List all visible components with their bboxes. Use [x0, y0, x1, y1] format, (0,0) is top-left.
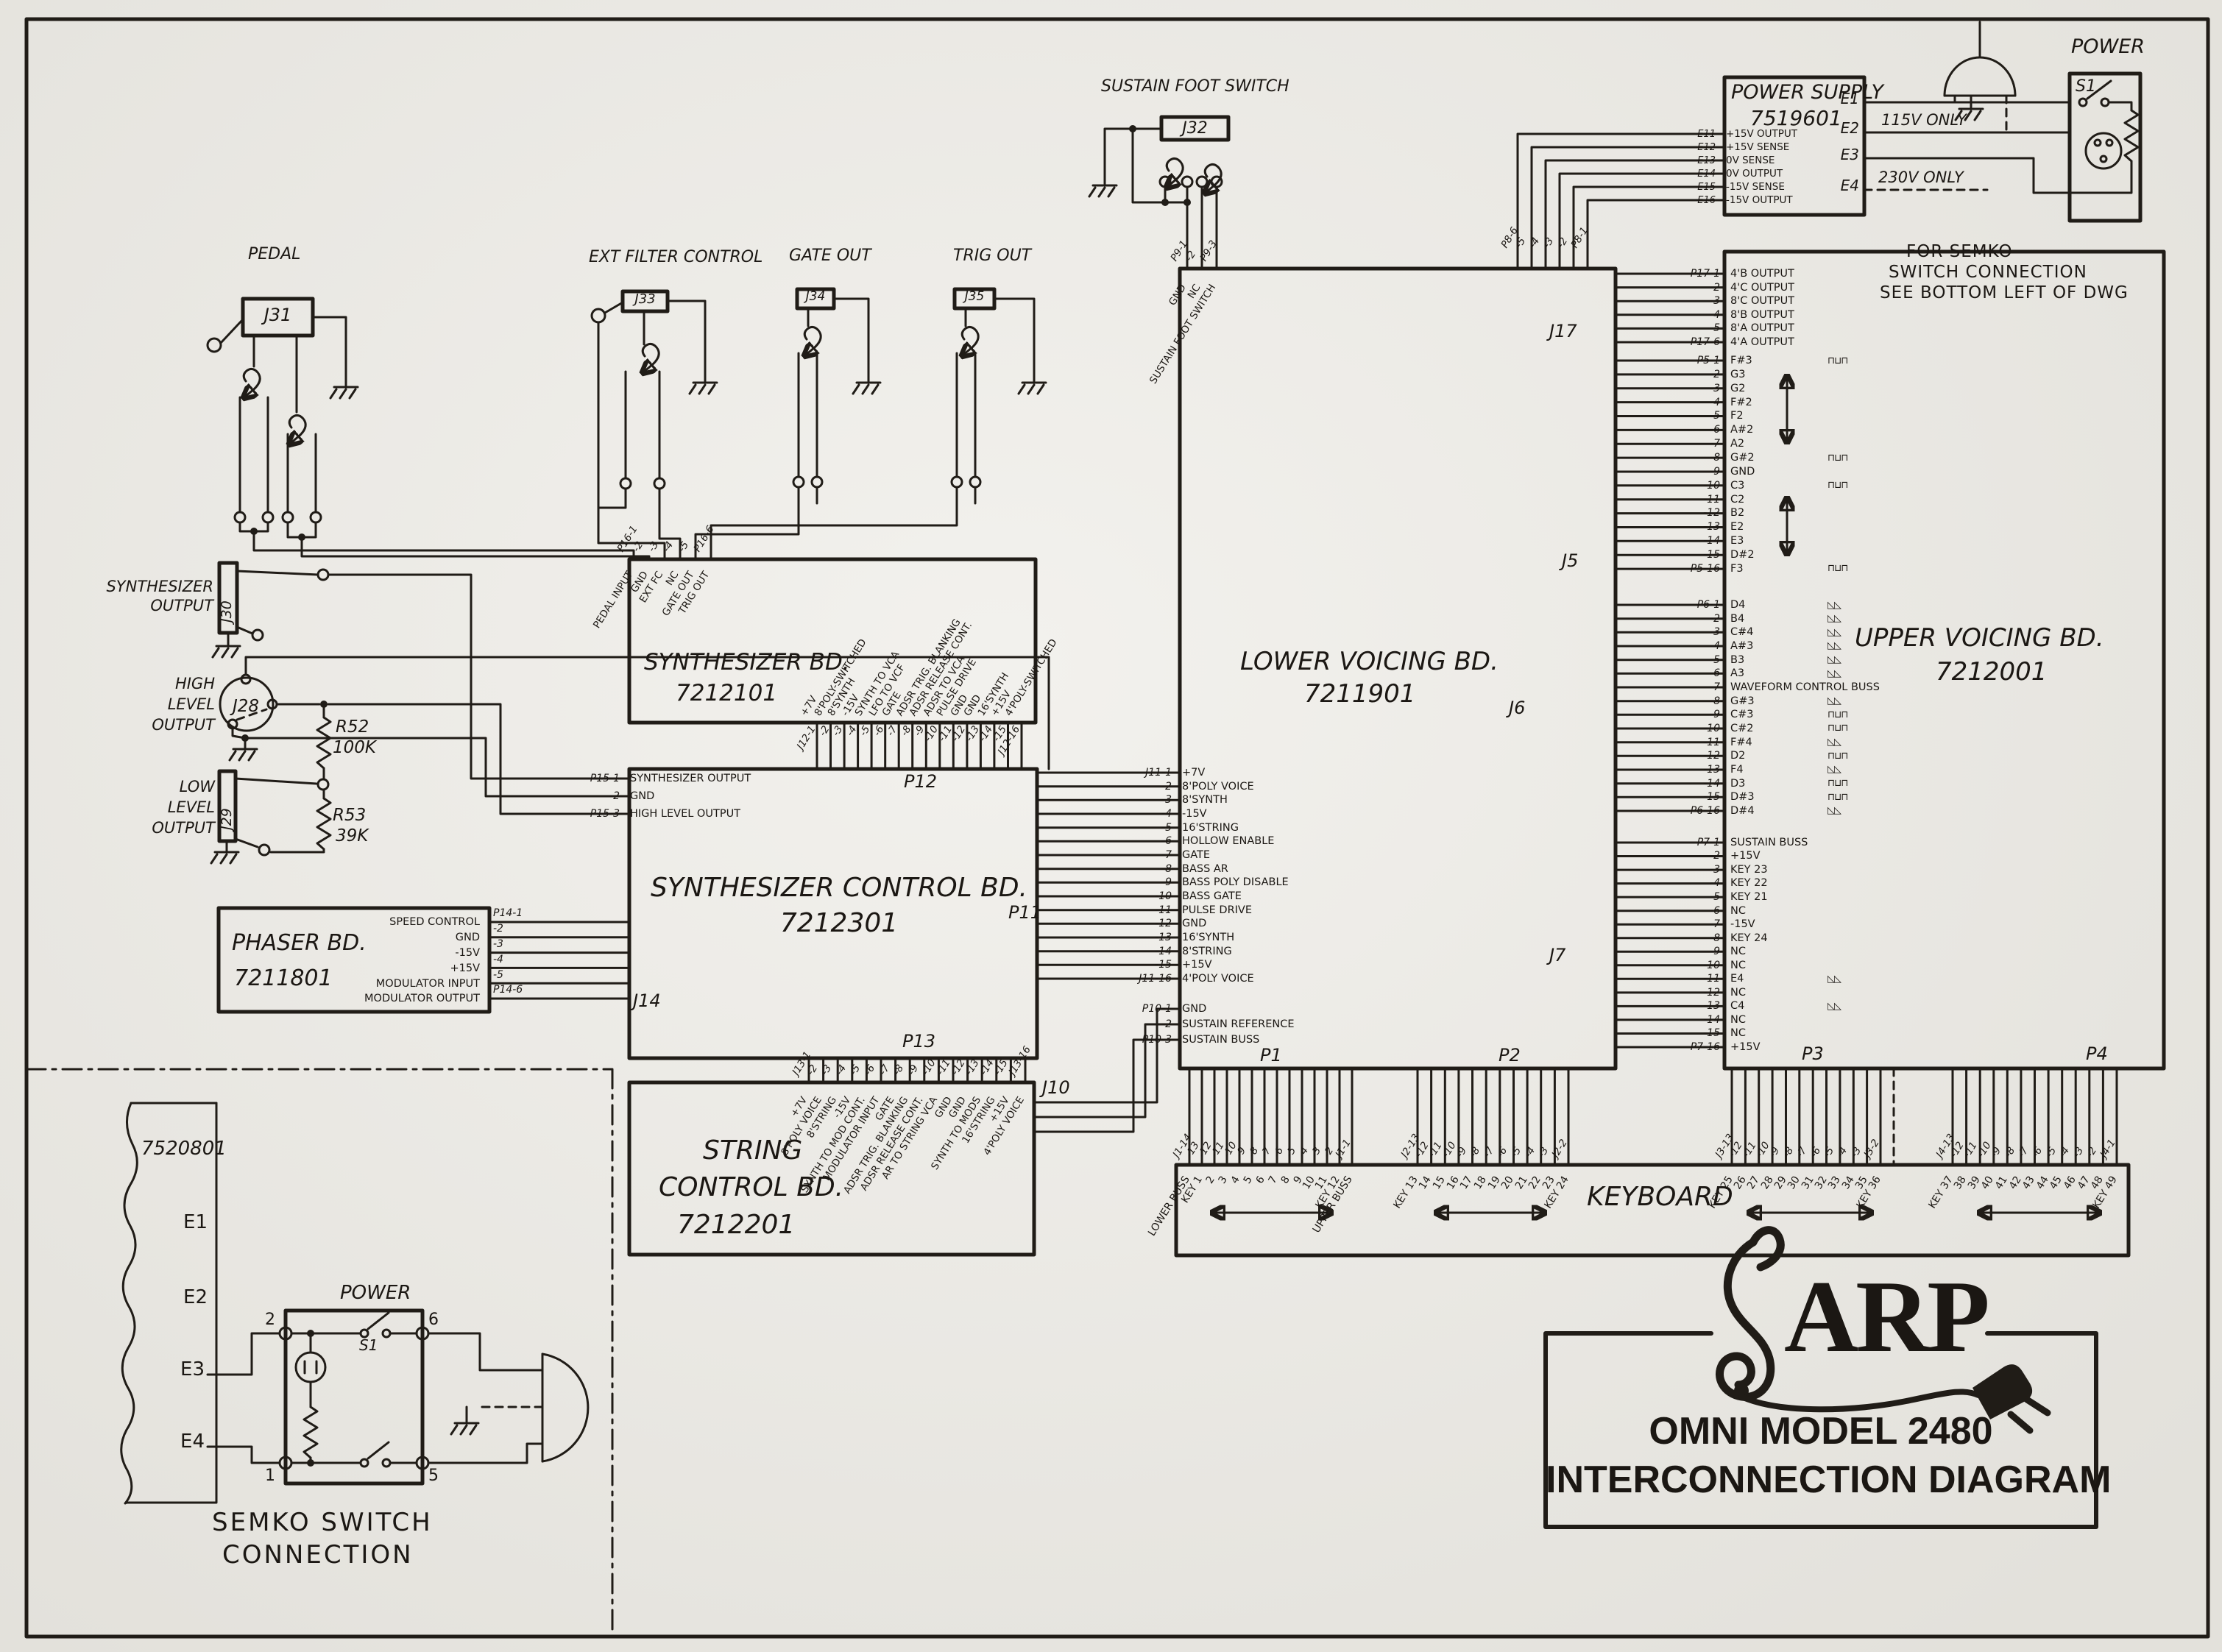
pin-row: -9 C#3 ⊓⊔⊓ [1619, 708, 1847, 722]
pin-name-cell: ADSR TRIG. BLANKING [904, 717, 918, 718]
note-115v: 115V ONLY [1881, 112, 1967, 128]
ps-term-e4: E4 [1816, 178, 1859, 194]
pin-number-cell: -10 [1231, 1159, 1243, 1160]
pin-name: SUSTAIN REFERENCE [1182, 1018, 1344, 1030]
jack-j31-ref: J31 [243, 306, 313, 325]
pin-row: MODULATOR INPUT [280, 976, 480, 991]
low-level-label-2: LEVEL [132, 799, 215, 815]
pin-number: P15-3 [508, 808, 630, 820]
j3-pin-numbers: J3-13-12-11-10-9-8-7-6-5-4-3J3-2 [1723, 1159, 1885, 1160]
pin-waveform: ⊓⊔⊓ [1825, 355, 1847, 366]
pin-number: -3 [1619, 295, 1730, 307]
pin-name-cell: NC [1189, 288, 1203, 288]
pin-number-cell: -8 [1791, 1159, 1804, 1160]
pin-number: J11-16 [1060, 973, 1182, 985]
pin-waveform: ⊓⊔⊓ [1825, 723, 1847, 734]
pin-number-cell: -7 [1804, 1159, 1817, 1160]
ps-port-terminal: E13 [1651, 155, 1726, 166]
ps-port-row: E15 -15V SENSE [1651, 180, 1822, 194]
pin-number-cell: J12-1 [804, 729, 818, 730]
pin-name: B4 [1730, 613, 1825, 625]
pin-number-cell: -8 [900, 729, 914, 730]
pin-number: -10 [1060, 890, 1182, 902]
j2-pin-numbers: J2-13-12-11-10-9-8-7-6-5-4-3J2-2 [1409, 1159, 1574, 1160]
pin-name: KEY 24 [1730, 932, 1825, 944]
pin-name: 4'A OUTPUT [1730, 336, 1825, 348]
pin-name: +15V [1182, 959, 1344, 971]
pin-row: -12 GND [1060, 917, 1344, 931]
upper-board-number: 7212001 [1936, 659, 2047, 686]
pin-row: -12 NC [1619, 985, 1841, 999]
pin-number: -14 [1060, 946, 1182, 957]
pin-number: -2 [1619, 369, 1730, 380]
pin-number: P6-1 [1619, 599, 1730, 611]
pin-row: -8 KEY 24 [1619, 931, 1841, 945]
pin-number-cell: -6 [1818, 1159, 1831, 1160]
pin-name-cell: ADSR TO VCA [931, 717, 945, 718]
pin-number-cell: -5 [1831, 1159, 1844, 1160]
p16-pin-numbers: P16-1-2-3-4-5P16-6 [625, 553, 717, 554]
pin-name-cell: 4'POLY-SWITCHED [1013, 717, 1027, 718]
connector-j10-label: J10 [1042, 1079, 1070, 1097]
pin-row: -5 [493, 967, 523, 982]
pin-name: SUSTAIN BUSS [1730, 837, 1825, 848]
pin-name: C#4 [1730, 626, 1825, 638]
pin-number-cell: P16-1 [625, 553, 640, 554]
low-level-label-3: OUTPUT [132, 820, 215, 836]
semko-note-2: SWITCH CONNECTION [1889, 263, 2087, 281]
ps-port-terminal: E14 [1651, 169, 1726, 180]
key-name-cell: 38 [1956, 1180, 1970, 1180]
pin-number-cell: J13-1 [800, 1077, 815, 1077]
pin-number-cell: -4 [1537, 249, 1551, 250]
pin-number: -4 [493, 954, 503, 965]
pin-name-cell: PULSE DRIVE [944, 717, 958, 718]
j4-key-names: KEY 373839404142434445464748KEY 49 [1942, 1180, 2120, 1180]
pin-number-cell: -11 [941, 729, 955, 730]
pin-waveform: ◺◺ [1825, 974, 1841, 985]
ps-port-name: -15V OUTPUT [1726, 194, 1822, 206]
pin-number-cell: -6 [1504, 1159, 1518, 1160]
pin-row: -12 D2 ⊓⊔⊓ [1619, 749, 1847, 763]
pin-row: -13 C4 ◺◺ [1619, 999, 1841, 1013]
pin-number-cell: -2 [1565, 249, 1579, 250]
pin-number: -12 [1619, 987, 1730, 999]
pin-number-cell: -6 [2039, 1159, 2053, 1160]
pin-waveform: ◺◺ [1825, 764, 1841, 775]
pin-number-cell: -10 [1985, 1159, 1999, 1160]
pin-number-cell: -11 [1971, 1159, 1985, 1160]
pin-waveform: ◺◺ [1825, 1001, 1841, 1012]
pin-name-cell: +7V [808, 717, 822, 718]
pin-number-cell: -14 [982, 729, 996, 730]
pin-name: 8'POLY VOICE [1182, 781, 1344, 793]
synth-output-label-1: SYNTHESIZER [103, 578, 213, 595]
pin-number: P6-16 [1619, 805, 1730, 817]
pin-number-cell: J2-2 [1560, 1159, 1574, 1160]
pin-name: 8'SYNTH [1182, 794, 1344, 806]
lower-board-name: LOWER VOICING BD. [1240, 649, 1499, 676]
power-switch-ref: S1 [2076, 78, 2096, 95]
pin-number-cell: -10 [927, 729, 941, 730]
pin-row: -5 16'STRING [1060, 820, 1344, 834]
pin-number-cell: -9 [1464, 1159, 1478, 1160]
pin-number: -13 [1619, 764, 1730, 776]
semko-board-number: 7520801 [141, 1139, 227, 1159]
pin-number-cell: -11 [1218, 1159, 1231, 1160]
pin-name-cell: -15V [849, 717, 863, 718]
pin-number-cell: -3 [2081, 1159, 2095, 1160]
pin-number: P15-1 [508, 773, 630, 784]
pin-row: -11 E4 ◺◺ [1619, 972, 1841, 986]
power-supply-name: POWER SUPPLY [1731, 82, 1883, 103]
pin-name: NC [1730, 1014, 1825, 1026]
pin-number: -11 [1619, 494, 1730, 506]
pin-number-cell: -6 [872, 1077, 887, 1077]
ps-term-e3: E3 [1816, 147, 1859, 163]
pin-row: -15 D#2 [1619, 548, 1847, 562]
p14-pin-numbers: P14-1 -2 -3 -4 -5 P14-6 [493, 906, 523, 998]
pin-number-cell: -6 [873, 729, 887, 730]
pin-name-cell: 16'STRING [983, 1100, 998, 1101]
key-name-cell: 30 [1789, 1180, 1802, 1180]
pin-number: -6 [1619, 667, 1730, 679]
pin-number: -11 [1619, 737, 1730, 748]
pin-number: -13 [1619, 1000, 1730, 1012]
pin-number: -12 [1619, 507, 1730, 519]
trig-out-jack-symbol [711, 299, 1046, 559]
pin-name: C#2 [1730, 723, 1825, 734]
pin-number-cell: -12 [955, 729, 969, 730]
pin-row: MODULATOR OUTPUT [280, 991, 480, 1007]
schematic-sheet: PEDAL J31 EXT FILTER CONTROL J33 GATE OU… [0, 0, 2222, 1652]
pin-row: -3 8'SYNTH [1060, 793, 1344, 807]
pin-number-cell: -14 [988, 1077, 1002, 1077]
p10-pins: P10-1 GND -2 SUSTAIN REFERENCE P10-3 SUS… [1060, 1002, 1344, 1048]
pin-number: P10-3 [1060, 1034, 1182, 1046]
key-name-cell: 21 [1516, 1180, 1530, 1180]
pin-row: -2 B4 ◺◺ [1619, 611, 1847, 625]
pin-row: -9 BASS POLY DISABLE [1060, 876, 1344, 890]
pin-number-cell: -3 [1551, 249, 1565, 250]
gate-out-jack-symbol [696, 299, 880, 559]
pin-number: -2 [1619, 850, 1730, 862]
pin-number: -12 [1619, 750, 1730, 762]
pin-name: BASS AR [1182, 863, 1344, 875]
pin-number-cell: -10 [1450, 1159, 1464, 1160]
key-name-cell: 28 [1762, 1180, 1775, 1180]
pin-number-cell: -15 [995, 729, 1009, 730]
connector-p2-label: P2 [1499, 1046, 1521, 1065]
pin-name: F#2 [1730, 397, 1825, 408]
semko-switch-ref: S1 [359, 1338, 378, 1353]
key-name-cell: 33 [1830, 1180, 1843, 1180]
pin-name: GND [1182, 1003, 1344, 1015]
pin-number: J11-1 [1060, 767, 1182, 779]
pin-name-cell: TRIG OUT [696, 575, 712, 575]
pin-number-cell: -6 [1281, 1159, 1293, 1160]
pin-number: -5 [493, 969, 503, 981]
pin-name: F#3 [1730, 355, 1825, 366]
synth-board-name: SYNTHESIZER BD. [644, 650, 850, 675]
pin-number: P7-16 [1619, 1041, 1730, 1053]
power-supply-ports: E11 +15V OUTPUT E12 +15V SENSE E13 0V SE… [1651, 127, 1822, 207]
pin-number-cell: -7 [886, 729, 900, 730]
pin-name: KEY 21 [1730, 891, 1825, 903]
pin-row: -13 E2 [1619, 520, 1847, 534]
pin-number-cell: -9 [913, 729, 927, 730]
pin-number-cell: -13 [968, 729, 982, 730]
pin-number: -5 [1619, 654, 1730, 666]
pin-number-cell: P9-3 [1208, 263, 1223, 263]
pin-name-cell: SUSTAIN FOOT SWITCH [1203, 288, 1218, 288]
key-name-cell: 39 [1969, 1180, 1983, 1180]
pin-row: -2 +15V [1619, 849, 1841, 863]
ps-port-terminal: E11 [1651, 129, 1726, 140]
pin-row: -7 WAVEFORM CONTROL BUSS [1619, 681, 1847, 695]
j11-pins: J11-1 +7V -2 8'POLY VOICE -3 8'SYNTH -4 … [1060, 766, 1344, 986]
pin-name-cell: 8'SYNTH [835, 717, 849, 718]
pin-name: D3 [1730, 778, 1825, 790]
pin-row: -10 NC [1619, 958, 1841, 972]
pin-name: A#3 [1730, 640, 1825, 652]
semko-power-outline [286, 1311, 422, 1483]
jack-j34-ref: J34 [797, 291, 834, 304]
pin-row: -7 -15V [1619, 918, 1841, 932]
pin-number-cell: -12 [1423, 1159, 1437, 1160]
pin-number-cell: -5 [1523, 249, 1537, 250]
key-name-cell: KEY 37 [1942, 1180, 1956, 1180]
pin-number-cell: -4 [1306, 1159, 1318, 1160]
pin-number-cell: J1-14 [1181, 1159, 1193, 1160]
pin-row: -7 GATE [1060, 848, 1344, 862]
low-level-label-1: LOW [132, 779, 215, 795]
pin-number: -9 [1619, 466, 1730, 478]
pin-row: -15 D#3 ⊓⊔⊓ [1619, 790, 1847, 804]
pin-number-cell: -11 [944, 1077, 959, 1077]
p8-pin-numbers: P8-6-5-4-3-2P8-1 [1509, 249, 1593, 250]
pin-name-cell: GND [955, 1100, 969, 1101]
pin-number: -15 [1619, 791, 1730, 803]
connector-p12-label: P12 [904, 773, 937, 791]
pin-row: SPEED CONTROL [280, 915, 480, 930]
pin-waveform: ◺◺ [1825, 695, 1841, 706]
pin-number-cell: -12 [959, 1077, 974, 1077]
pin-name: A#2 [1730, 424, 1825, 436]
pin-row: -6 A#2 [1619, 423, 1847, 437]
ps-port-row: E11 +15V OUTPUT [1651, 127, 1822, 141]
connector-j14-label: J14 [633, 992, 661, 1010]
pin-row: -9 NC [1619, 945, 1841, 959]
pin-number: -7 [1060, 849, 1182, 861]
key-name-cell: KEY 1 [1192, 1180, 1205, 1180]
pin-number: -10 [1619, 960, 1730, 971]
p15-pins: P15-1 SYNTHESIZER OUTPUT -2 GND P15-3 HI… [508, 770, 821, 823]
pin-number: -2 [508, 790, 630, 802]
pin-name: +15V [280, 963, 480, 974]
pin-row: -8 G#2 ⊓⊔⊓ [1619, 451, 1847, 465]
pin-number-cell: P16-6 [701, 553, 717, 554]
pin-name: 8'A OUTPUT [1730, 322, 1825, 334]
pin-name-cell: LFO TO VCF [877, 717, 891, 718]
pin-name-cell: 8'POLY-SWITCHED [822, 717, 836, 718]
pin-name: MODULATOR OUTPUT [280, 993, 480, 1004]
connector-p13-label: P13 [902, 1032, 935, 1051]
pin-number-cell: J3-13 [1723, 1159, 1736, 1160]
pin-row: -14 8'STRING [1060, 944, 1344, 958]
pin-number-cell: -4 [1844, 1159, 1858, 1160]
synth-output-jack-symbol [213, 570, 629, 779]
pin-name-cell: PEDAL INPUT [620, 575, 635, 575]
pin-number-cell: -11 [1436, 1159, 1450, 1160]
ps-port-name: -15V SENSE [1726, 181, 1822, 193]
key-name-cell: UPPER BUSS [1342, 1180, 1355, 1180]
semko-pin-2: 2 [265, 1311, 275, 1328]
pin-name: NC [1730, 960, 1825, 971]
pin-number: -5 [1619, 891, 1730, 903]
pin-waveform: ⊓⊔⊓ [1825, 792, 1847, 803]
pin-row: -15 NC [1619, 1027, 1841, 1041]
pin-name: 16'SYNTH [1182, 932, 1344, 943]
pin-number: -14 [1619, 778, 1730, 790]
pin-number-cell: P8-1 [1579, 249, 1593, 250]
j1-pin-numbers: J1-14-13-12-11-10-9-8-7-6-5-4-3-2J1-1 [1181, 1159, 1356, 1160]
pin-name: 16'STRING [1182, 822, 1344, 834]
pin-number: -11 [1060, 904, 1182, 916]
key-name-cell: 41 [1996, 1180, 2010, 1180]
jack-j35-ref: J35 [955, 291, 994, 304]
pin-name: NC [1730, 946, 1825, 957]
pin-name: GND [630, 790, 821, 802]
pin-name: 4'POLY VOICE [1182, 973, 1344, 985]
pin-number-cell: J3-2 [1872, 1159, 1885, 1160]
pin-number: -8 [1619, 452, 1730, 464]
pin-row: -6 HOLLOW ENABLE [1060, 834, 1344, 848]
pin-number-cell: -2 [1331, 1159, 1343, 1160]
string-board-number: 7212201 [677, 1211, 795, 1239]
pin-row: P17-1 4'B OUTPUT [1619, 267, 1825, 281]
title-line-1: OMNI MODEL 2480 [1546, 1411, 2096, 1452]
jack-j32-ref: J32 [1161, 120, 1228, 137]
pin-name-cell: GATE [890, 717, 904, 718]
pin-row: P7-16 +15V [1619, 1040, 1841, 1054]
key-name-cell: 32 [1816, 1180, 1830, 1180]
pin-number: P17-6 [1619, 336, 1730, 348]
j13-pin-names: +7V8'POLY VOICE8'STRING-15VSYNTH TO MOD … [796, 1100, 1027, 1101]
pin-name: KEY 22 [1730, 877, 1825, 889]
pin-row: -3 G2 [1619, 381, 1847, 395]
pin-number-cell: -9 [1243, 1159, 1256, 1160]
pin-name: HOLLOW ENABLE [1182, 835, 1344, 847]
pin-name: HIGH LEVEL OUTPUT [630, 808, 821, 820]
jack-j29-ref: J29 [220, 781, 235, 830]
pin-number-cell: -5 [857, 1077, 872, 1077]
pin-row: -3 [493, 937, 523, 952]
key-name-cell: 40 [1983, 1180, 1997, 1180]
pin-row: P6-1 D4 ◺◺ [1619, 598, 1847, 612]
key-name-cell: 44 [2037, 1180, 2051, 1180]
pin-number: -4 [1060, 808, 1182, 820]
pin-number-cell: -2 [1193, 263, 1208, 263]
pin-number-cell: -4 [1532, 1159, 1546, 1160]
pin-name-cell: GND [972, 717, 986, 718]
pin-number: -13 [1060, 932, 1182, 943]
pin-number-cell: P9-1 [1178, 263, 1193, 263]
pin-row: -13 F4 ◺◺ [1619, 763, 1847, 777]
resistor-r52-value: 100K [333, 739, 376, 756]
pin-row: -3 C#4 ◺◺ [1619, 625, 1847, 639]
j4-pin-numbers: J4-13-12-11-10-9-8-7-6-5-4-3-2J4-1 [1944, 1159, 2122, 1160]
semko-pin-1: 1 [265, 1467, 275, 1484]
pin-number: -15 [1619, 1027, 1730, 1039]
pin-name-cell: GND [940, 1100, 955, 1101]
pin-number: -3 [1619, 383, 1730, 394]
pin-name: F2 [1730, 410, 1825, 422]
pin-row: P10-3 SUSTAIN BUSS [1060, 1032, 1344, 1048]
pin-name-cell: SYNTH TO MOD CONT. [853, 1100, 868, 1101]
pin-waveform: ◺◺ [1825, 805, 1841, 816]
ps-port-name: 0V OUTPUT [1726, 168, 1822, 180]
pin-name-cell: GATE OUT [681, 575, 696, 575]
pin-name-cell: -15V [839, 1100, 854, 1101]
pin-row: -7 A2 [1619, 437, 1847, 451]
pin-name: GND [1730, 466, 1825, 478]
pin-name-cell: AR TO STRING VCA [925, 1100, 940, 1101]
key-name-cell: 8 [1280, 1180, 1292, 1180]
pin-number-cell: J12-16 [1009, 729, 1023, 730]
pin-row: -15V [280, 946, 480, 961]
pin-name: -15V [280, 947, 480, 959]
pin-name: SPEED CONTROL [280, 916, 480, 928]
key-name-cell: 26 [1735, 1180, 1748, 1180]
pin-name: GND [280, 932, 480, 943]
pin-name: F#4 [1730, 737, 1825, 748]
pin-number: -8 [1619, 932, 1730, 944]
pin-name: D2 [1730, 750, 1825, 762]
pin-number-cell: -4 [2067, 1159, 2081, 1160]
jack-j28-ref: J28 [233, 698, 259, 715]
pin-name: G3 [1730, 369, 1825, 380]
semko-note-1: FOR SEMKO [1906, 243, 2013, 260]
pin-row: -8 BASS AR [1060, 862, 1344, 876]
power-switch-outline [2070, 74, 2140, 221]
p16-pin-names: PEDAL INPUTGNDEXT FCNCGATE OUTTRIG OUT [620, 575, 712, 575]
pin-number: P10-1 [1060, 1003, 1182, 1015]
key-name-cell: 29 [1775, 1180, 1788, 1180]
pin-number: P7-1 [1619, 837, 1730, 848]
trig-out-label: TRIG OUT [953, 247, 1031, 264]
pin-name: 4'C OUTPUT [1730, 282, 1825, 294]
semko-e1: E1 [166, 1213, 208, 1233]
pin-row: P14-6 [493, 982, 523, 998]
pin-number-cell: -12 [1736, 1159, 1749, 1160]
pin-number: -4 [1619, 309, 1730, 321]
pin-number: -10 [1619, 480, 1730, 492]
pin-name: C4 [1730, 1000, 1825, 1012]
ps-term-e2: E2 [1816, 121, 1859, 136]
connector-p4-label: P4 [2086, 1045, 2108, 1063]
semko-pin-5: 5 [428, 1467, 439, 1484]
pin-row: -6 NC [1619, 904, 1841, 918]
semko-e4: E4 [163, 1432, 205, 1452]
pin-row: J11-1 +7V [1060, 766, 1344, 780]
pin-number: P5-16 [1619, 563, 1730, 575]
pin-number: -6 [1060, 835, 1182, 847]
key-name-cell: 3 [1217, 1180, 1230, 1180]
note-230v: 230V ONLY [1878, 169, 1964, 185]
pin-name: B2 [1730, 507, 1825, 519]
pin-row: P17-6 4'A OUTPUT [1619, 336, 1825, 350]
